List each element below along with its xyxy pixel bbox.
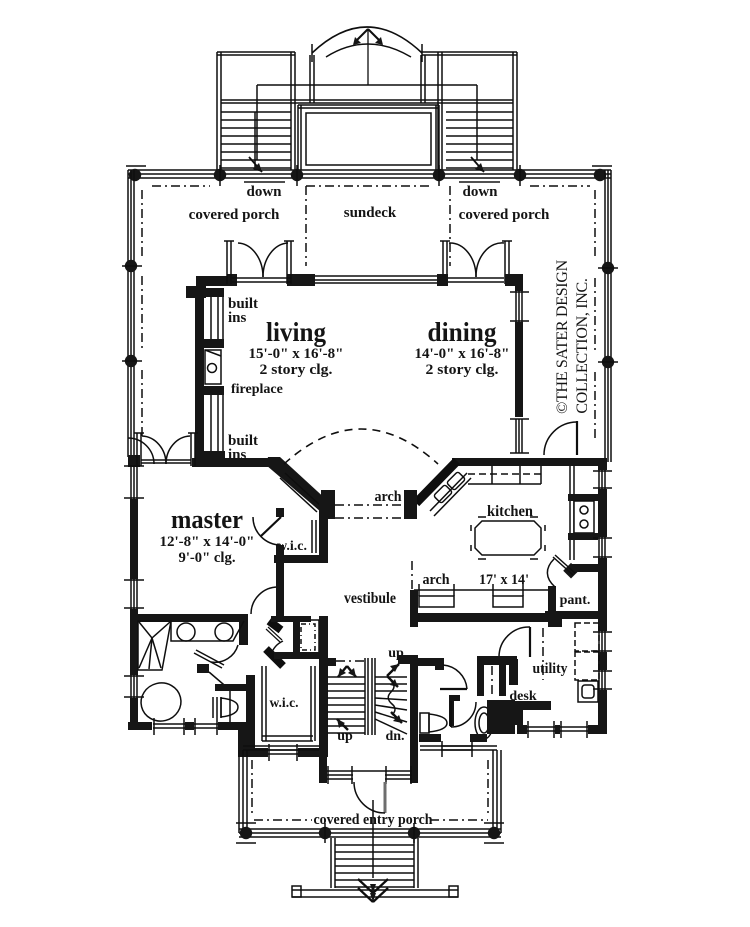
svg-text:12'-8" x 14'-0": 12'-8" x 14'-0" <box>160 534 255 550</box>
svg-text:up: up <box>337 729 353 744</box>
svg-text:down: down <box>462 184 498 200</box>
svg-text:pant.: pant. <box>560 593 591 608</box>
svg-text:covered porch: covered porch <box>459 207 550 223</box>
svg-text:arch: arch <box>423 572 451 588</box>
svg-text:dn.: dn. <box>385 729 404 744</box>
svg-text:desk: desk <box>509 689 536 704</box>
svg-text:ins: ins <box>228 310 247 326</box>
svg-text:arch: arch <box>375 489 403 505</box>
svg-text:15'-0" x 16'-8": 15'-0" x 16'-8" <box>249 346 344 362</box>
svg-text:2 story clg.: 2 story clg. <box>260 362 333 378</box>
svg-text:w.i.c.: w.i.c. <box>277 539 307 554</box>
svg-text:17' x 14': 17' x 14' <box>479 572 529 588</box>
svg-text:COLLECTION, INC.: COLLECTION, INC. <box>574 278 591 413</box>
svg-text:utility: utility <box>533 661 568 677</box>
svg-text:fireplace: fireplace <box>231 382 283 397</box>
svg-text:down: down <box>246 184 282 200</box>
svg-text:sundeck: sundeck <box>344 205 397 221</box>
svg-text:©THE SATER DESIGN: ©THE SATER DESIGN <box>554 259 571 413</box>
svg-text:9'-0" clg.: 9'-0" clg. <box>179 550 236 566</box>
svg-text:covered porch: covered porch <box>189 207 280 223</box>
svg-text:dining: dining <box>428 317 497 347</box>
svg-text:up: up <box>388 646 404 661</box>
svg-text:ins: ins <box>228 447 247 463</box>
svg-text:master: master <box>171 505 243 534</box>
svg-text:kitchen: kitchen <box>487 503 533 520</box>
svg-text:vestibule: vestibule <box>344 590 396 607</box>
svg-text:2 story clg.: 2 story clg. <box>426 362 499 378</box>
svg-text:w.i.c.: w.i.c. <box>270 696 299 711</box>
svg-text:14'-0" x 16'-8": 14'-0" x 16'-8" <box>415 346 510 362</box>
svg-text:covered entry porch: covered entry porch <box>314 812 434 828</box>
svg-text:living: living <box>266 317 326 347</box>
